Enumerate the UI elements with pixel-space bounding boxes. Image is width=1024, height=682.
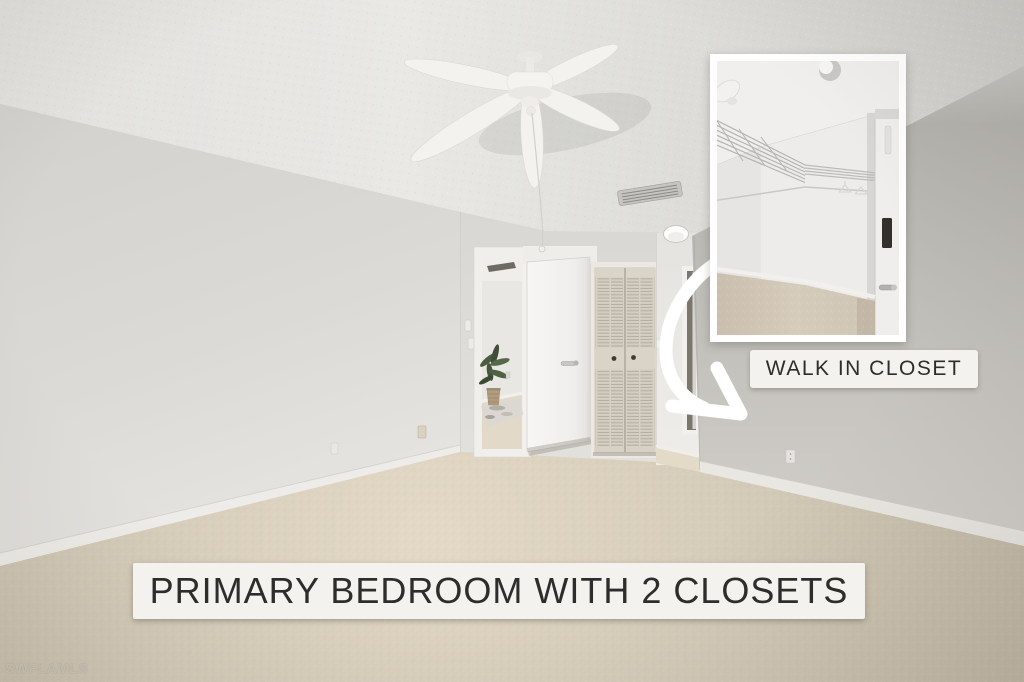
wall-outlet-left bbox=[331, 443, 338, 454]
mls-watermark: SWFLAMLS bbox=[5, 660, 88, 676]
closet-door-dark-object bbox=[882, 218, 892, 248]
wall-outlet-right bbox=[786, 450, 795, 463]
closet-door-knob bbox=[631, 355, 636, 360]
closet-left-wall bbox=[717, 147, 761, 289]
closet-doors bbox=[591, 262, 659, 458]
walk-in-closet-label: WALK IN CLOSET bbox=[750, 350, 978, 388]
closet-door-knob bbox=[612, 356, 617, 361]
adjacent-wall-outlet bbox=[506, 372, 510, 378]
photo-banner: PRIMARY BEDROOM WITH 2 CLOSETS bbox=[133, 563, 865, 619]
bedroom-door bbox=[523, 246, 597, 456]
closet-door bbox=[875, 109, 899, 335]
walk-in-closet-scene bbox=[717, 61, 899, 335]
closet-door-handle bbox=[879, 285, 897, 291]
wall-outlet-back bbox=[418, 426, 426, 438]
hallway-ceiling-light bbox=[664, 226, 689, 243]
real-estate-photo: WALK IN CLOSET PRIMARY BEDROOM WITH 2 CL… bbox=[0, 0, 1024, 682]
closet-back-wall bbox=[761, 117, 867, 299]
hallway-light-switch bbox=[657, 339, 663, 349]
inset-photo-walk-in-closet bbox=[710, 54, 906, 342]
adjacent-room-doorway bbox=[474, 247, 531, 457]
